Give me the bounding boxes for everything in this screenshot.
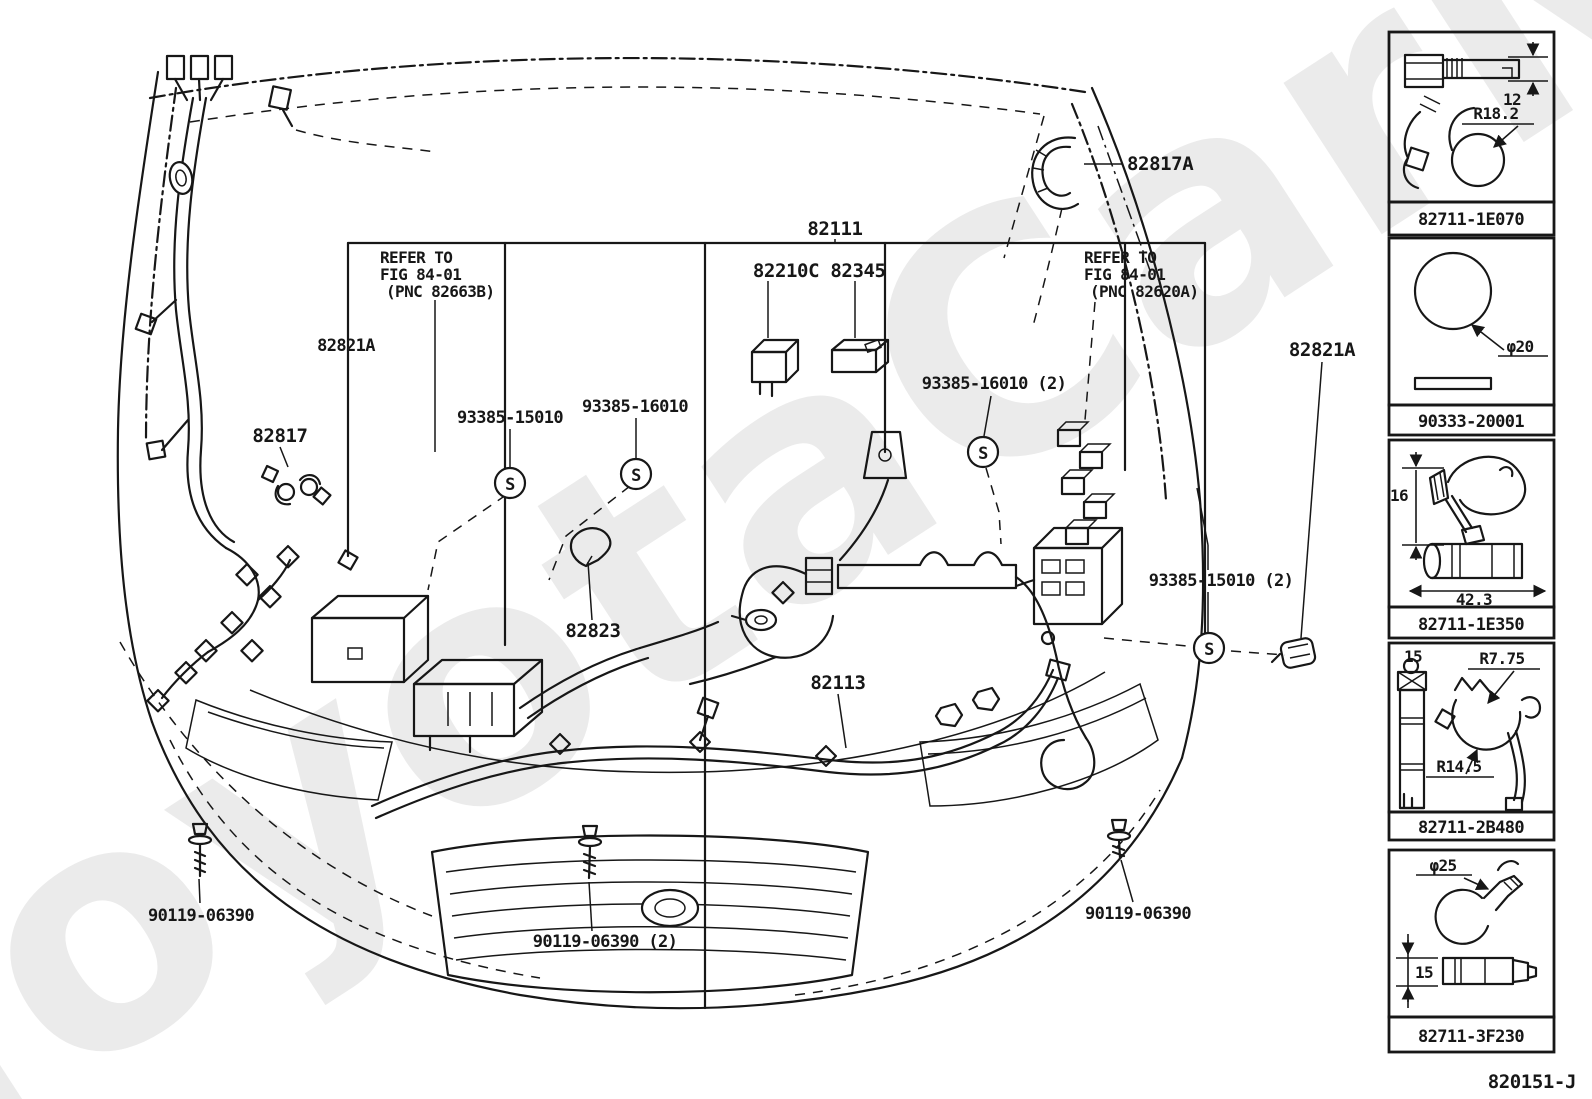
splice-letter: S <box>978 444 988 464</box>
label-90119-06390-center: 90119-06390 (2) <box>533 932 678 952</box>
sidebar-part-number: 82711-1E350 <box>1418 615 1524 635</box>
refer-note-line: (PNC 82620A) <box>1090 282 1198 301</box>
splice-letter: S <box>631 466 641 486</box>
sidebar-panel-82711-3F230: 82711-3F230 φ25 15 <box>1389 850 1554 1052</box>
label-93385-15010-2: 93385-15010 (2) <box>1149 571 1294 591</box>
splice-symbol: S <box>1194 633 1224 663</box>
label-82821A-left: 82821A <box>317 336 375 356</box>
splice-letter: S <box>1204 640 1214 660</box>
parts-diagram-page: ToyotaCarMire.ru <box>0 0 1592 1099</box>
drawing-code: 820151-J <box>1488 1071 1576 1093</box>
dimension-label: 15 <box>1404 647 1422 666</box>
label-82345: 82345 <box>830 260 885 282</box>
label-90119-06390-right: 90119-06390 <box>1085 904 1191 924</box>
label-93385-16010: 93385-16010 <box>582 397 688 417</box>
grommet-82821A-icon <box>1272 637 1316 669</box>
dimension-label: R7.75 <box>1479 649 1524 668</box>
dimension-label: 16 <box>1390 486 1408 505</box>
clamp-thumbnail <box>1424 457 1525 578</box>
dimension-label: φ25 <box>1429 856 1456 875</box>
splice-letter: S <box>505 475 515 495</box>
clamp-thumbnail <box>1436 861 1536 984</box>
label-82817A: 82817A <box>1127 153 1194 175</box>
splice-symbol: S <box>621 459 651 489</box>
sidebar-part-number: 90333-20001 <box>1418 412 1524 432</box>
clamp-82817-icon <box>262 466 330 504</box>
dimension-label: R18.2 <box>1473 104 1518 123</box>
splice-symbol: S <box>968 437 998 467</box>
refer-note-line: (PNC 82663B) <box>386 282 494 301</box>
sidebar-part-number: 82711-1E070 <box>1418 210 1524 230</box>
dimension-label: 15 <box>1415 963 1433 982</box>
toyota-emblem-icon <box>642 890 698 926</box>
dimension-label: 42.3 <box>1456 590 1492 609</box>
dimension-label: φ20 <box>1506 337 1533 356</box>
label-82823: 82823 <box>565 620 620 642</box>
label-93385-15010: 93385-15010 <box>457 408 563 428</box>
headlight-right <box>920 684 1158 806</box>
label-93385-16010-2: 93385-16010 (2) <box>922 374 1067 394</box>
watermark: ToyotaCarMire.ru <box>0 0 1592 1099</box>
label-82113: 82113 <box>810 672 865 694</box>
sidebar-panel-82711-2B480: 82711-2B480 15 R7.75 R14.5 <box>1389 643 1554 840</box>
sidebar-part-number: 82711-2B480 <box>1418 818 1524 838</box>
label-90119-06390-left: 90119-06390 <box>148 906 254 926</box>
sidebar-panel-82711-1E350: 82711-1E350 16 42.3 <box>1389 440 1554 638</box>
watermark-text: ToyotaCarMire.ru <box>0 0 1592 1099</box>
splice-symbol: S <box>495 468 525 498</box>
clamp-thumbnail <box>1398 659 1540 810</box>
plate-thumbnail <box>1415 378 1491 389</box>
label-82210C: 82210C <box>753 260 819 282</box>
label-82111: 82111 <box>807 218 862 240</box>
sidebar-part-number: 82711-3F230 <box>1418 1027 1524 1047</box>
refer-note-left: REFER TO FIG 84-01 (PNC 82663B) <box>380 248 494 301</box>
dimension-label: R14.5 <box>1436 757 1481 776</box>
screw-icon <box>1108 820 1130 858</box>
label-82821A-right: 82821A <box>1289 339 1356 361</box>
label-82817: 82817 <box>252 425 307 447</box>
